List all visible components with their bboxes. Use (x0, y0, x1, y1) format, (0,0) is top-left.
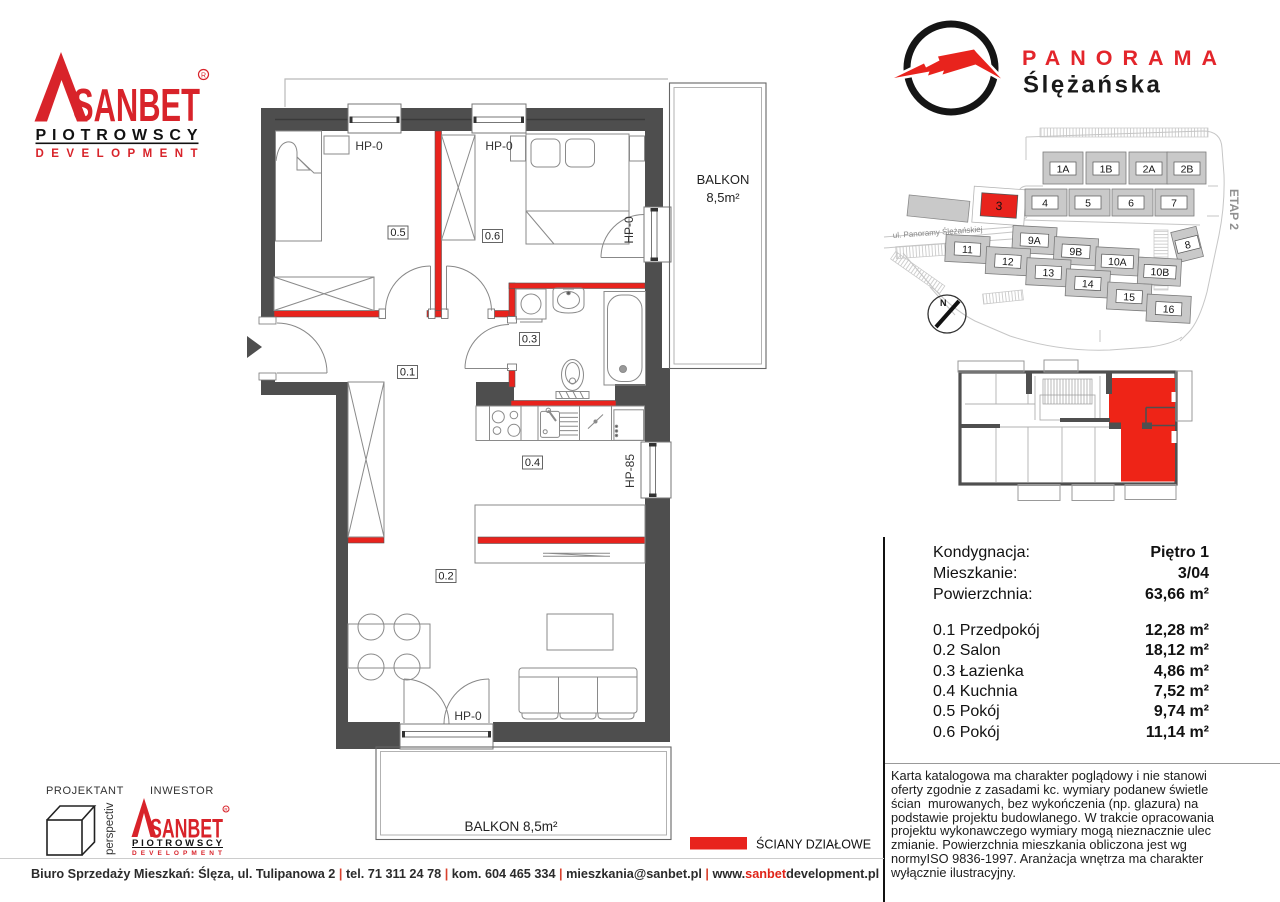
svg-text:ŚCIANY DZIAŁOWE: ŚCIANY DZIAŁOWE (756, 837, 871, 852)
svg-text:10A: 10A (1108, 256, 1127, 269)
svg-text:14: 14 (1082, 278, 1094, 291)
svg-text:PIOTROWSCY: PIOTROWSCY (36, 127, 198, 144)
svg-text:2B: 2B (1181, 164, 1194, 176)
svg-text:15: 15 (1123, 291, 1135, 304)
svg-text:PROJEKTANT: PROJEKTANT (46, 785, 124, 797)
svg-text:13: 13 (1042, 267, 1054, 280)
svg-text:SANBET: SANBET (73, 79, 200, 131)
svg-text:1A: 1A (1057, 164, 1070, 176)
svg-text:BALKON 8,5m²: BALKON 8,5m² (464, 819, 558, 834)
svg-text:Ślężańska: Ślężańska (1023, 71, 1162, 99)
svg-text:16: 16 (1162, 303, 1174, 316)
svg-text:11: 11 (962, 244, 974, 257)
svg-text:ETAP 2: ETAP 2 (1227, 189, 1241, 230)
svg-text:4: 4 (1042, 198, 1048, 210)
svg-text:0.6: 0.6 (485, 231, 500, 243)
svg-text:HP-0: HP-0 (485, 139, 513, 153)
svg-text:0.4: 0.4 (525, 457, 540, 469)
svg-text:2A: 2A (1143, 164, 1156, 176)
svg-text:N: N (940, 298, 947, 308)
svg-text:9B: 9B (1069, 246, 1082, 259)
svg-text:7: 7 (1171, 198, 1177, 210)
svg-text:HP-85: HP-85 (623, 454, 637, 488)
svg-text:HP-0: HP-0 (355, 139, 383, 153)
svg-text:DEVELOPMENT: DEVELOPMENT (36, 148, 198, 160)
svg-text:12: 12 (1002, 256, 1014, 269)
svg-text:1B: 1B (1100, 164, 1113, 176)
svg-text:R: R (201, 73, 206, 80)
svg-text:0.1: 0.1 (400, 367, 415, 379)
svg-text:0.5: 0.5 (390, 227, 405, 239)
svg-text:DEVELOPMENT: DEVELOPMENT (132, 850, 222, 857)
svg-text:perspectiv: perspectiv (104, 802, 116, 855)
svg-text:0.2: 0.2 (438, 571, 453, 583)
svg-text:10B: 10B (1150, 266, 1169, 279)
svg-text:9A: 9A (1028, 235, 1041, 248)
svg-text:INWESTOR: INWESTOR (150, 785, 214, 797)
svg-text:PANORAMA: PANORAMA (1022, 46, 1227, 70)
svg-text:HP-0: HP-0 (454, 709, 482, 723)
svg-text:3: 3 (995, 199, 1003, 213)
svg-text:8,5m²: 8,5m² (706, 190, 740, 205)
svg-text:BALKON: BALKON (697, 172, 750, 187)
svg-text:5: 5 (1085, 198, 1091, 210)
svg-text:HP-0: HP-0 (622, 216, 636, 244)
svg-text:0.3: 0.3 (522, 334, 537, 346)
svg-text:6: 6 (1128, 198, 1134, 210)
